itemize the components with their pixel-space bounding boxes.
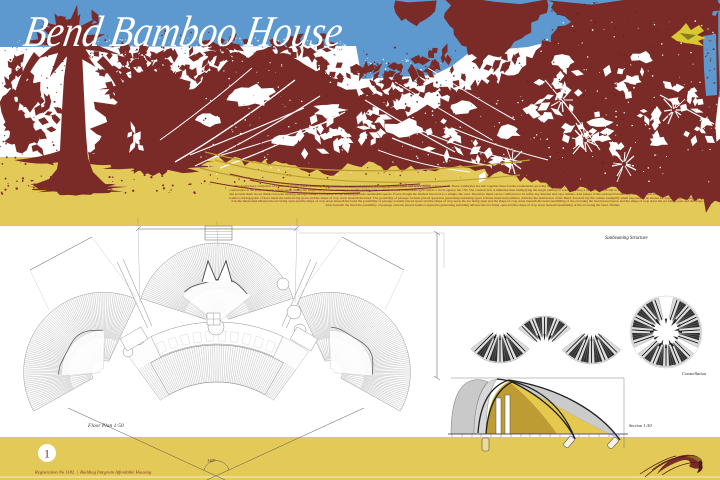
svg-text:Section 1:50: Section 1:50 <box>629 423 652 428</box>
svg-text:1: 1 <box>44 447 50 461</box>
svg-text:140°: 140° <box>207 458 216 463</box>
svg-text:Bend Bamboo House: Bend Bamboo House <box>20 6 347 56</box>
svg-text:Floor Plan 1:50: Floor Plan 1:50 <box>87 423 124 429</box>
svg-text:Constellation: Constellation <box>682 371 707 376</box>
svg-text:Registration No 1182 | Build: Registration No 1182 | Building Integrum… <box>34 470 152 475</box>
svg-text:Sunbeaming Structure: Sunbeaming Structure <box>605 236 648 241</box>
